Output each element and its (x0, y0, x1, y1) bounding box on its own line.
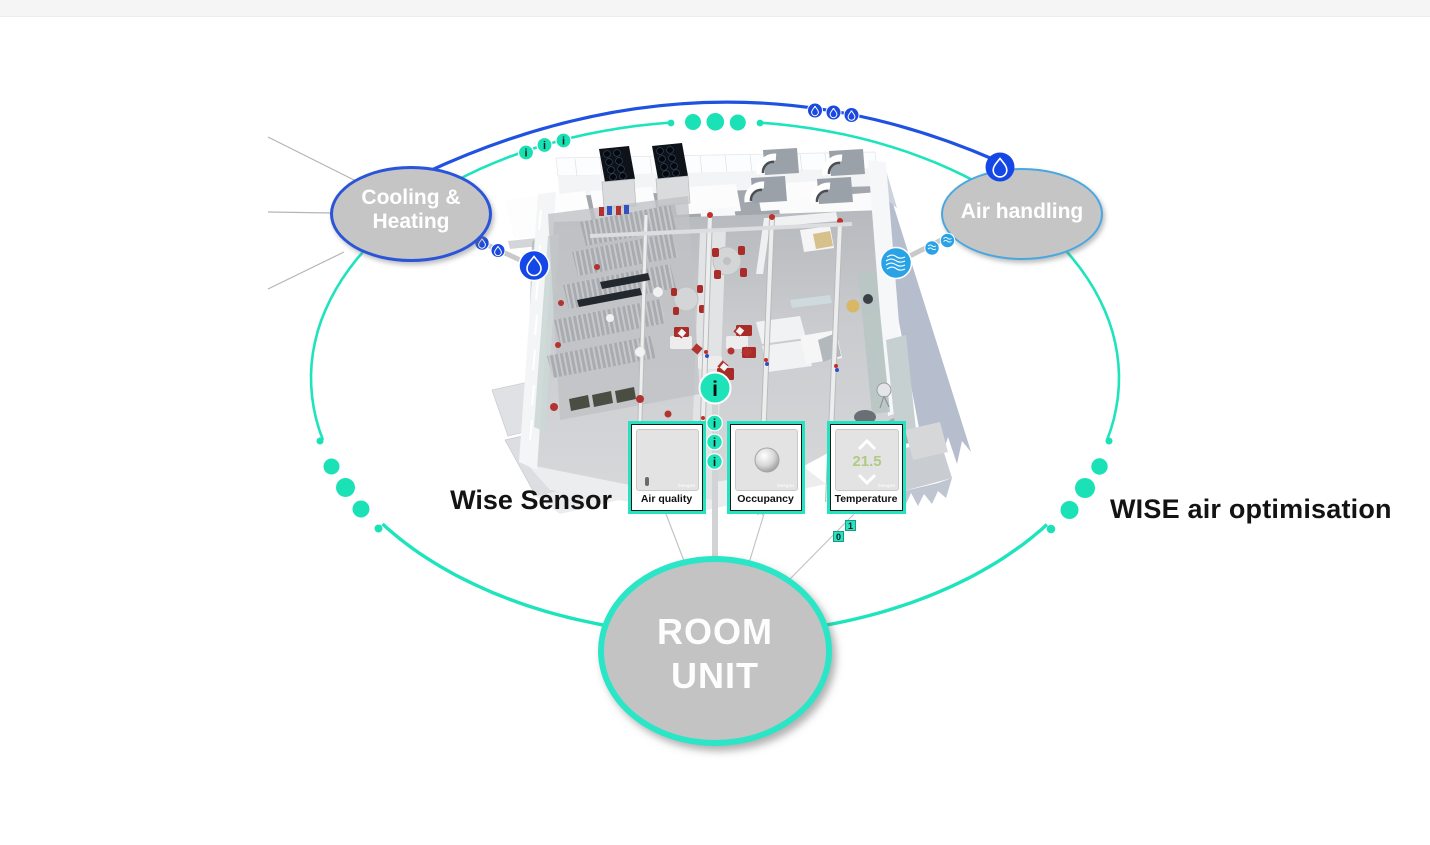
svg-text:i: i (524, 148, 527, 160)
svg-text:i: i (713, 455, 716, 469)
svg-text:21.5: 21.5 (852, 453, 881, 470)
svg-text:i: i (713, 417, 716, 431)
svg-text:i: i (712, 378, 718, 401)
svg-text:i: i (562, 136, 565, 148)
svg-text:i: i (543, 140, 546, 152)
svg-text:i: i (713, 436, 716, 450)
